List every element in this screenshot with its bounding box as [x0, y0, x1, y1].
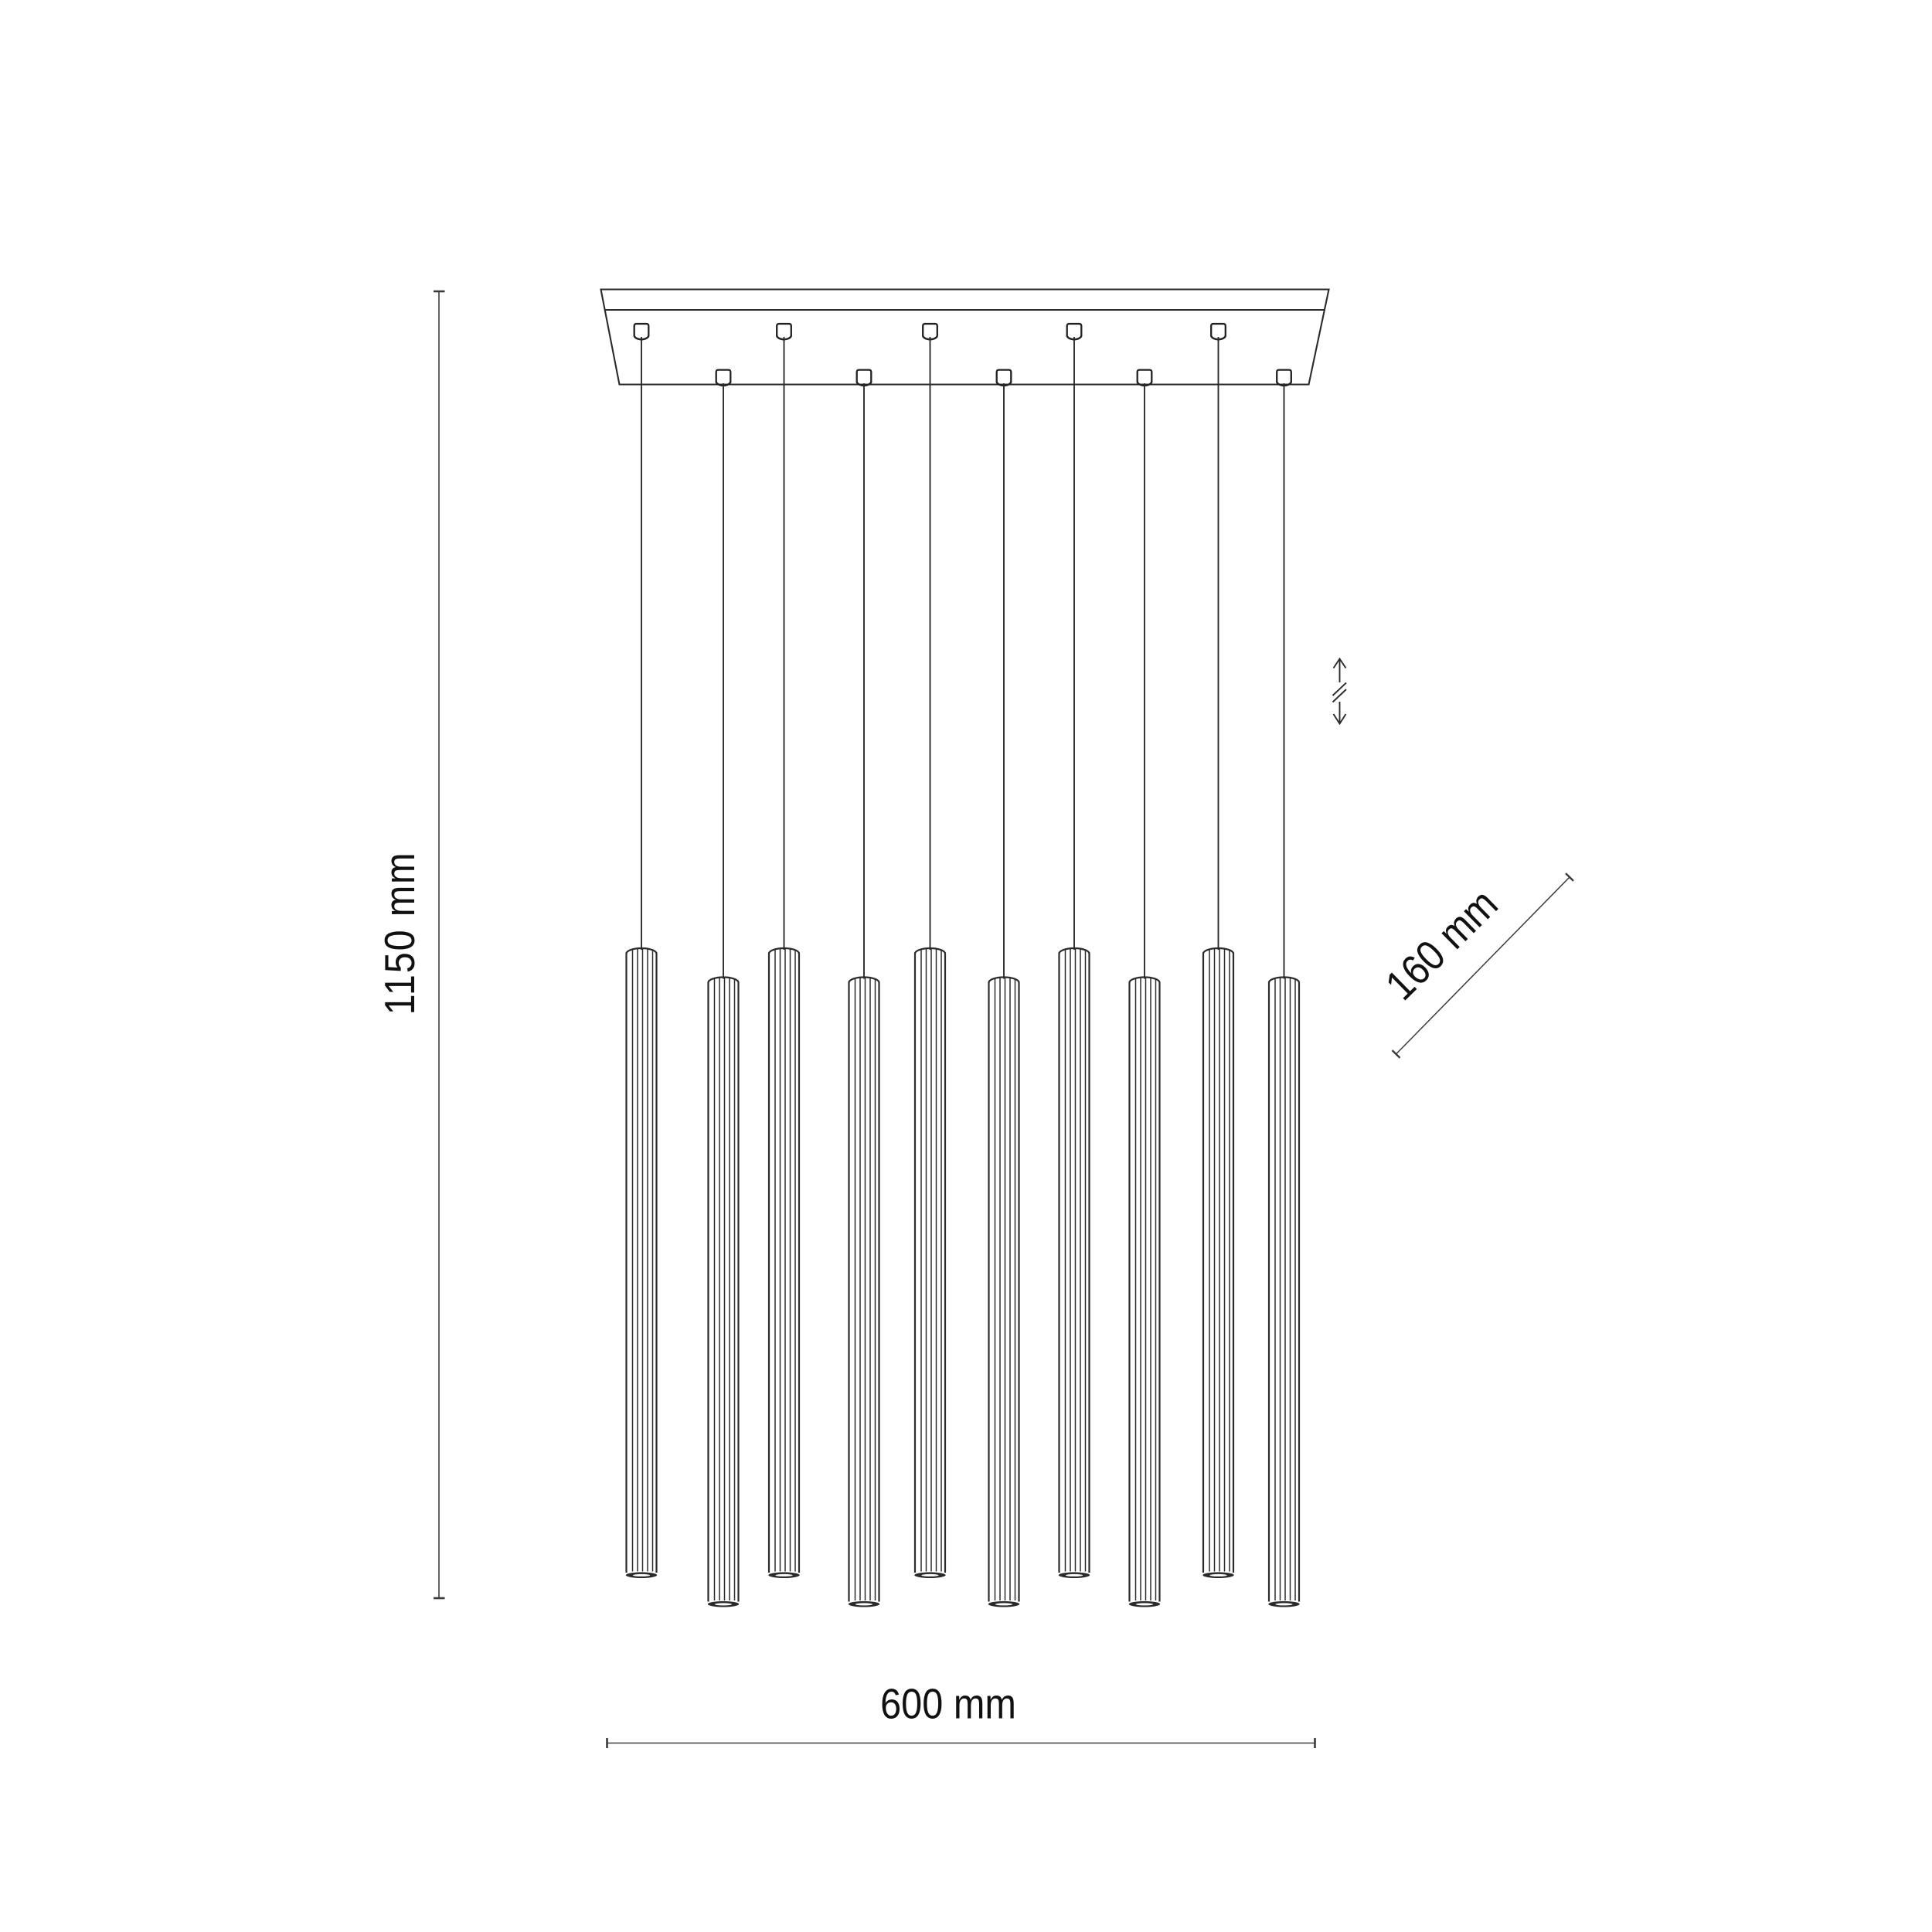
svg-text:600 mm: 600 mm: [880, 1681, 1016, 1728]
svg-text:1150 mm: 1150 mm: [376, 852, 423, 1015]
